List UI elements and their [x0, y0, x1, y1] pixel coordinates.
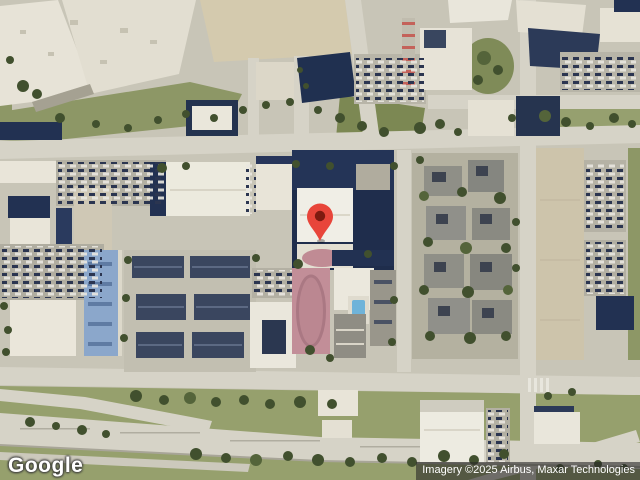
google-logo[interactable]: Google: [8, 454, 83, 478]
satellite-map[interactable]: Google Imagery ©2025 Airbus, Maxar Techn…: [0, 0, 640, 480]
map-attribution: Imagery ©2025 Airbus, Maxar Technologies: [416, 462, 640, 480]
satellite-imagery: [0, 0, 640, 480]
pink-track: [292, 268, 330, 354]
map-pin-hole: [315, 211, 325, 221]
apartment-complex-right: [412, 153, 518, 359]
apartment-complex-left: [124, 250, 296, 372]
